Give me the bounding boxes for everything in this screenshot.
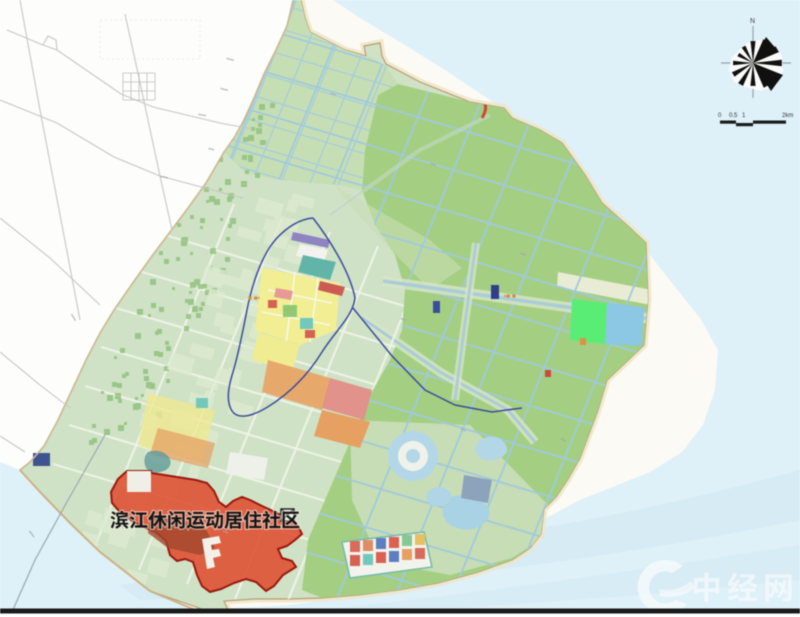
svg-text:▪■ ■: ▪■ ■: [504, 293, 516, 300]
svg-text:N: N: [750, 18, 755, 25]
svg-text:■ ■▪: ■ ■▪: [248, 295, 260, 302]
svg-text:2km: 2km: [782, 113, 793, 119]
svg-text:0.5: 0.5: [729, 113, 738, 119]
